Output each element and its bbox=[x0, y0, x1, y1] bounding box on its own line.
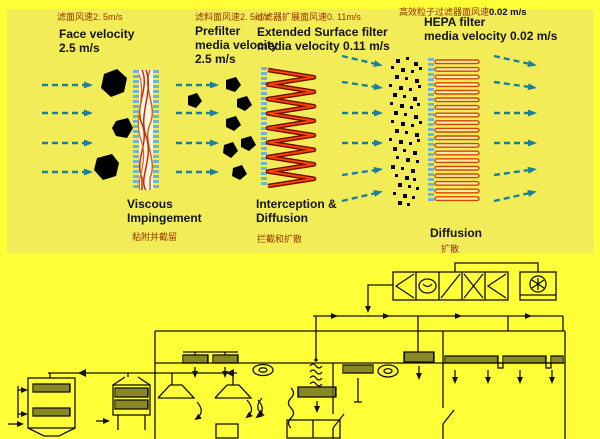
prefilter-graphic bbox=[136, 70, 156, 190]
airflow-arrows-inlet bbox=[42, 85, 86, 172]
hepa-en-label: HEPA filtermedia velocity 0.02 m/s bbox=[424, 15, 557, 43]
workbenches bbox=[216, 420, 340, 438]
curtain bbox=[289, 388, 294, 428]
air-handling-unit bbox=[393, 263, 538, 300]
fine-particles bbox=[389, 57, 422, 206]
diffusion-cn-label: 扩散 bbox=[441, 242, 459, 255]
exhaust-fan-unit bbox=[520, 272, 556, 300]
damper-icon bbox=[396, 274, 414, 298]
interception-diffusion-label: Interception &Diffusion bbox=[256, 197, 337, 225]
extended-filter-en-label: Extended Surface filtermedia velocity 0.… bbox=[257, 25, 390, 53]
face-velocity-cn-label: 滤面风速2. 5m/s bbox=[57, 10, 123, 23]
cleanroom-hvac-schematic bbox=[0, 255, 600, 439]
canopy-hood bbox=[158, 385, 194, 398]
canopy-hood bbox=[215, 385, 251, 398]
supply-terminal bbox=[404, 316, 434, 378]
viscous-impingement-label: ViscousImpingement bbox=[127, 197, 202, 225]
airflow-arrows-outlet bbox=[494, 56, 530, 201]
medium-particles bbox=[188, 77, 256, 180]
diffusion-label: Diffusion bbox=[430, 226, 482, 240]
supply-duct bbox=[313, 285, 563, 331]
ceiling-hepa-bank-right bbox=[445, 356, 563, 382]
face-velocity-en-label: Face velocity2.5 m/s bbox=[59, 27, 134, 55]
airflow-arrows-prehepa bbox=[342, 56, 376, 201]
dust-collector bbox=[8, 373, 75, 436]
large-particles bbox=[94, 69, 133, 180]
screenshot-root: 滤面风速2. 5m/s Face velocity2.5 m/s 滤料面风速2.… bbox=[0, 0, 600, 439]
door-leaf bbox=[333, 414, 344, 428]
air-washer-unit bbox=[96, 373, 150, 430]
door-leaf bbox=[443, 410, 454, 424]
cleanroom-walls bbox=[155, 331, 565, 439]
viscous-impingement-cn-label: 粘附并截留 bbox=[132, 230, 177, 243]
extended-surface-filter-graphic bbox=[264, 67, 314, 187]
interception-diffusion-cn-label: 拦截和扩散 bbox=[257, 232, 302, 245]
extended-filter-cn-label: 过滤器扩展面风速0. 11m/s bbox=[255, 10, 361, 23]
hepa-filter-graphic bbox=[431, 58, 479, 203]
ceiling-fans bbox=[253, 365, 398, 378]
